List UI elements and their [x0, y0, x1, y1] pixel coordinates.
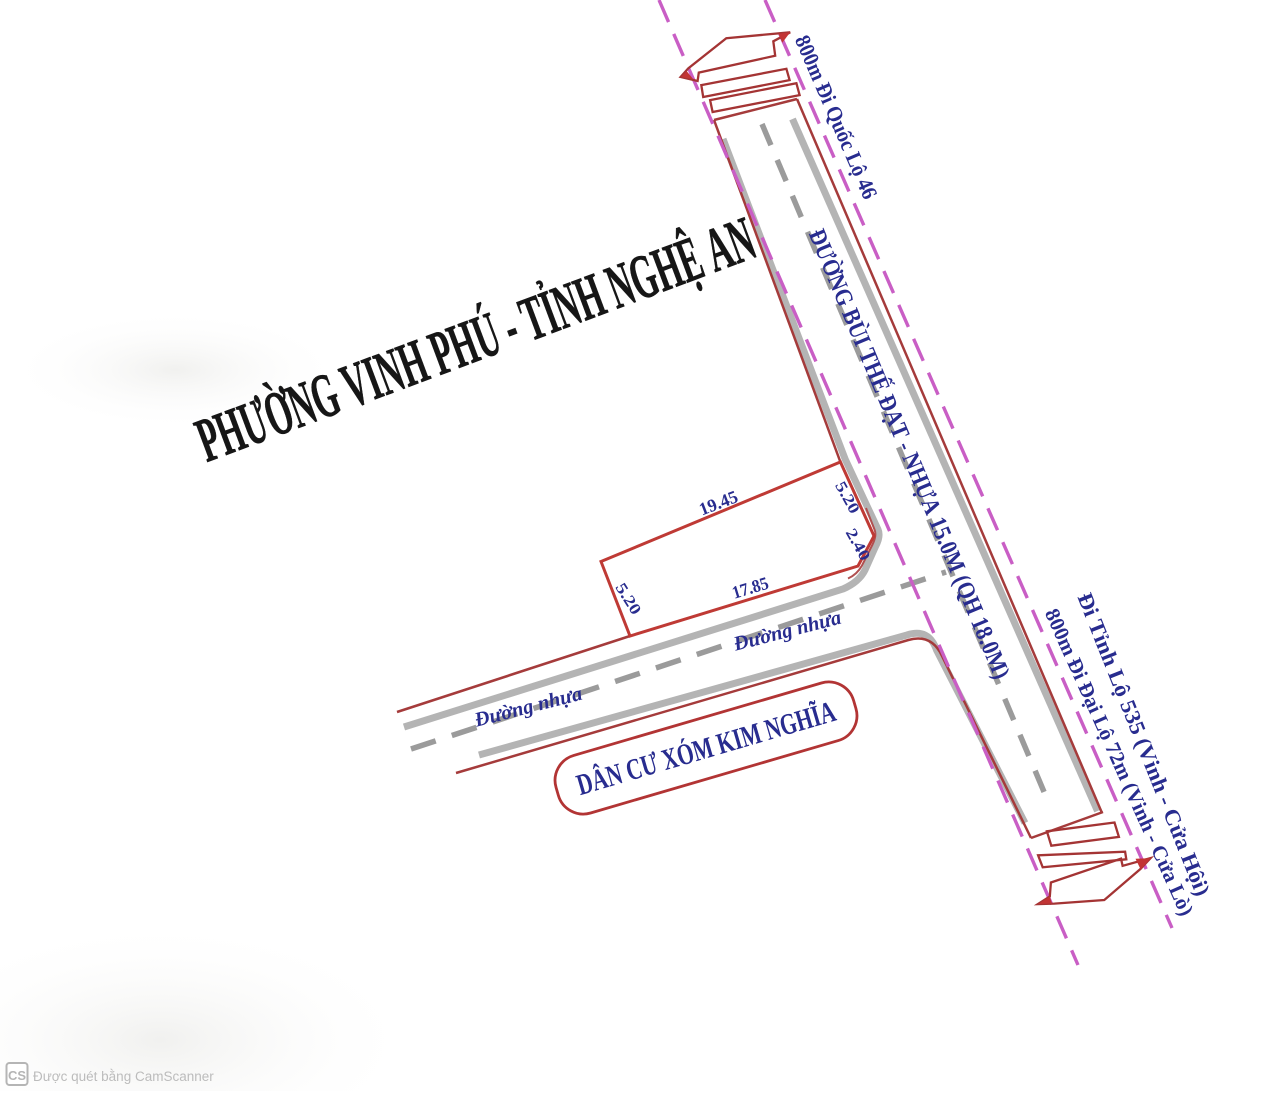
svg-text:Được quét bằng CamScanner: Được quét bằng CamScanner — [33, 1069, 214, 1084]
svg-text:CS: CS — [8, 1068, 26, 1083]
